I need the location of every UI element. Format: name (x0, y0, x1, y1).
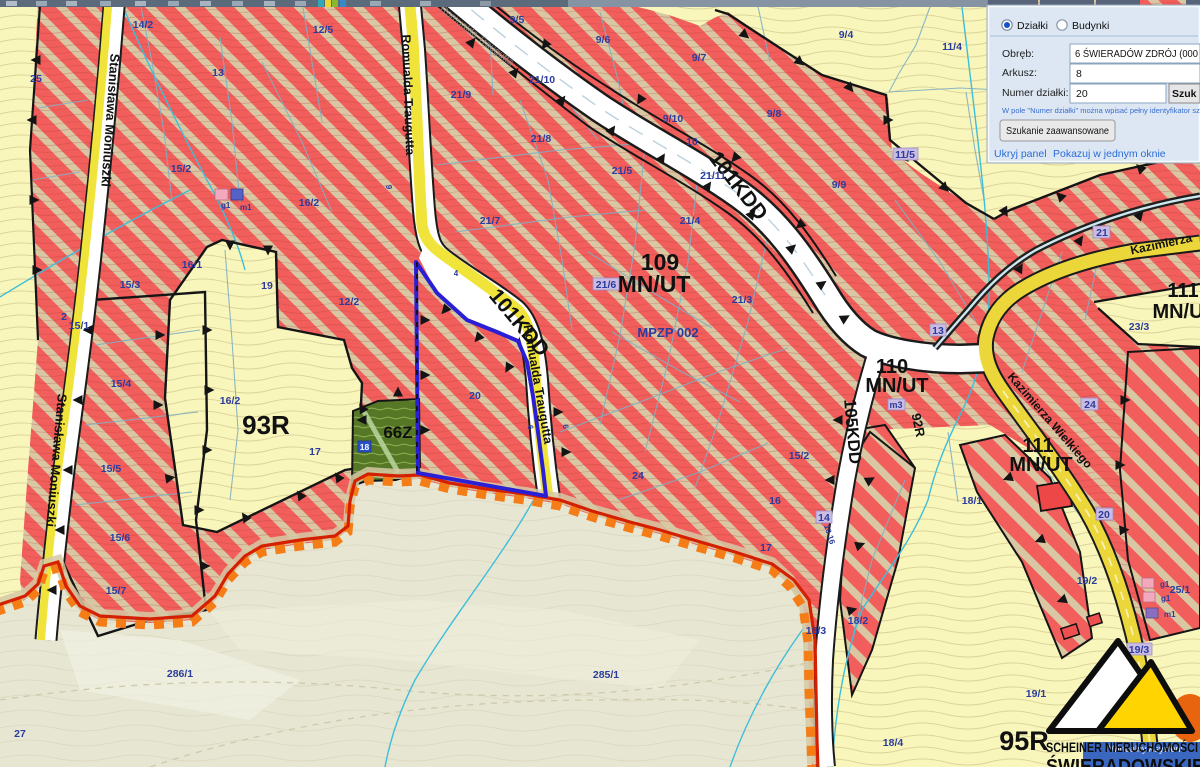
svg-text:17: 17 (309, 446, 321, 458)
svg-text:285/1: 285/1 (593, 669, 619, 681)
svg-text:11/4: 11/4 (942, 41, 962, 53)
svg-text:9/8: 9/8 (767, 108, 782, 120)
svg-text:21/11: 21/11 (700, 170, 726, 182)
svg-text:19/1: 19/1 (1026, 688, 1047, 700)
svg-text:20: 20 (1076, 88, 1088, 100)
svg-text:9/9: 9/9 (832, 179, 847, 191)
svg-text:8: 8 (1076, 68, 1082, 80)
svg-text:25: 25 (30, 73, 42, 85)
svg-text:16/1: 16/1 (182, 259, 203, 271)
svg-text:12/2: 12/2 (339, 296, 360, 308)
svg-text:6 ŚWIERADÓW ZDRÓJ (000: 6 ŚWIERADÓW ZDRÓJ (000 (1075, 47, 1198, 60)
svg-text:18/2: 18/2 (848, 615, 869, 627)
svg-text:66Z: 66Z (383, 423, 412, 442)
svg-text:Budynki: Budynki (1072, 20, 1109, 32)
svg-text:13: 13 (212, 67, 224, 79)
svg-text:g1: g1 (1161, 594, 1171, 603)
svg-text:19/2: 19/2 (1077, 575, 1098, 587)
svg-text:m1: m1 (240, 203, 252, 212)
svg-text:18/3: 18/3 (806, 625, 827, 637)
svg-text:g1: g1 (1160, 580, 1170, 589)
svg-text:16/2: 16/2 (220, 395, 241, 407)
svg-text:m3: m3 (889, 400, 902, 410)
svg-text:21/7: 21/7 (480, 215, 501, 227)
svg-text:4: 4 (454, 269, 459, 278)
svg-text:SCHEINER NIERUCHOMOŚCI: SCHEINER NIERUCHOMOŚCI (1046, 738, 1198, 755)
svg-text:95R: 95R (999, 726, 1049, 756)
svg-text:ŚWIERADOWSKIE: ŚWIERADOWSKIE (1046, 754, 1200, 767)
svg-text:15/6: 15/6 (110, 532, 131, 544)
svg-text:93R: 93R (242, 410, 290, 440)
svg-text:21/4: 21/4 (680, 215, 701, 227)
svg-text:286/1: 286/1 (167, 668, 193, 680)
svg-text:Ukryj panel: Ukryj panel (994, 148, 1047, 160)
svg-text:MN/UT: MN/UT (865, 375, 928, 397)
svg-text:21/8: 21/8 (531, 133, 552, 145)
svg-text:Pokazuj w jednym oknie: Pokazuj w jednym oknie (1053, 148, 1166, 160)
svg-text:14: 14 (818, 512, 830, 524)
svg-text:23/3: 23/3 (1129, 321, 1150, 333)
svg-text:24: 24 (632, 470, 644, 482)
svg-text:10: 10 (686, 136, 698, 148)
svg-text:18: 18 (360, 442, 370, 452)
svg-text:9/6: 9/6 (596, 34, 611, 46)
svg-text:15/4: 15/4 (111, 378, 132, 390)
svg-text:W pole "Numer działki" można w: W pole "Numer działki" można wpisać pełn… (1002, 106, 1200, 115)
svg-text:m1: m1 (1164, 610, 1176, 619)
svg-text:21: 21 (1096, 227, 1108, 239)
svg-text:18/4: 18/4 (883, 737, 904, 749)
svg-text:g1: g1 (221, 201, 231, 210)
svg-text:21/3: 21/3 (732, 294, 753, 306)
svg-text:15/7: 15/7 (106, 585, 127, 597)
svg-text:20: 20 (1098, 509, 1110, 521)
svg-text:19/3: 19/3 (1129, 644, 1150, 656)
svg-text:19: 19 (261, 280, 273, 292)
svg-text:6: 6 (385, 184, 394, 189)
svg-text:2: 2 (61, 311, 67, 323)
svg-text:15/2: 15/2 (789, 450, 810, 462)
svg-text:25/1: 25/1 (1170, 584, 1191, 596)
svg-text:15/5: 15/5 (101, 463, 122, 475)
svg-text:Szukanie zaawansowane: Szukanie zaawansowane (1006, 125, 1109, 137)
svg-text:15/3: 15/3 (120, 279, 141, 291)
svg-text:16/2: 16/2 (299, 197, 320, 209)
svg-text:15/2: 15/2 (171, 163, 192, 175)
svg-text:21/9: 21/9 (451, 89, 472, 101)
svg-text:21/10: 21/10 (529, 74, 555, 86)
svg-text:9/4: 9/4 (839, 29, 854, 41)
svg-text:9/10: 9/10 (663, 113, 684, 125)
svg-text:Obręb:: Obręb: (1002, 48, 1034, 60)
svg-text:27: 27 (14, 728, 26, 740)
svg-text:20: 20 (469, 390, 481, 402)
svg-text:24: 24 (1084, 399, 1096, 411)
svg-text:13: 13 (932, 325, 944, 337)
svg-text:17: 17 (760, 542, 772, 554)
svg-text:21/6: 21/6 (596, 279, 617, 291)
svg-text:Działki: Działki (1017, 20, 1048, 32)
svg-text:Szuk: Szuk (1172, 88, 1197, 100)
svg-text:Numer działki:: Numer działki: (1002, 87, 1069, 99)
svg-text:14/2: 14/2 (133, 19, 154, 31)
svg-text:111: 111 (1167, 280, 1198, 302)
svg-text:16: 16 (769, 495, 781, 507)
svg-text:Arkusz:: Arkusz: (1002, 67, 1037, 79)
svg-text:MPZP 002: MPZP 002 (637, 325, 698, 340)
svg-text:9/5: 9/5 (510, 14, 525, 26)
svg-text:12/5: 12/5 (313, 24, 334, 36)
svg-text:MN/U: MN/U (1152, 301, 1200, 323)
svg-text:18/1: 18/1 (962, 495, 983, 507)
svg-text:MN/UT: MN/UT (618, 271, 691, 297)
svg-text:11/5: 11/5 (895, 149, 915, 161)
svg-text:15/1: 15/1 (69, 320, 90, 332)
svg-text:MN/UT: MN/UT (1009, 454, 1072, 476)
svg-text:9/7: 9/7 (692, 52, 707, 64)
svg-text:21/5: 21/5 (612, 165, 633, 177)
